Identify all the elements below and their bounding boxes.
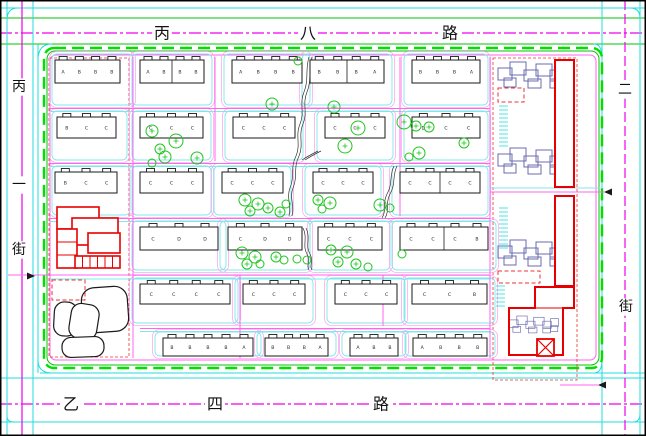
stair-bump: [352, 57, 360, 61]
unit-type-letter: B: [453, 69, 456, 75]
unit-type-letter: C: [105, 180, 108, 186]
unit-type-letter: C: [361, 180, 364, 186]
stair-bump: [334, 57, 342, 61]
stair-bump: [325, 224, 333, 228]
stair-bump: [192, 57, 200, 61]
unit-type-letter: C: [431, 236, 434, 242]
stair-bump: [147, 114, 155, 118]
unit-type-letter: C: [149, 180, 152, 186]
stair-bump: [254, 57, 262, 61]
stair-bump: [260, 114, 268, 118]
unit-type-letter: B: [473, 292, 476, 298]
stair-bump: [281, 114, 289, 118]
stair-bump: [170, 281, 178, 285]
unit-type-letter: C: [191, 125, 194, 131]
stair-bump: [354, 335, 362, 339]
stair-bump: [249, 169, 257, 173]
stair-bump: [108, 57, 116, 61]
unit-type-letter: C: [252, 292, 255, 298]
stair-bump: [144, 57, 152, 61]
unit-type-letter: C: [373, 125, 376, 131]
school-building-block: [57, 229, 77, 268]
stair-bump: [421, 281, 429, 285]
residential-building: CCC: [140, 169, 203, 194]
stair-bump: [147, 169, 155, 173]
residential-building: BCC: [55, 169, 117, 194]
unit-type-letter: B: [388, 345, 391, 351]
unit-type-letter: B: [475, 236, 478, 242]
stair-bump: [75, 57, 83, 61]
unit-type-letter: C: [327, 236, 330, 242]
unit-type-letter: D: [203, 236, 207, 242]
stair-bump: [474, 335, 482, 339]
unit-type-letter: B: [372, 345, 375, 351]
school-building-block: [88, 233, 120, 253]
road-label-bottom: 四: [207, 395, 223, 414]
stair-bump: [240, 335, 248, 339]
stair-bump: [222, 335, 230, 339]
unit-type-letter: C: [341, 180, 344, 186]
stair-bump: [102, 114, 110, 118]
stair-bump: [291, 281, 299, 285]
residential-building: DCC: [412, 114, 480, 139]
stair-bump: [63, 114, 71, 118]
stair-bump: [103, 169, 111, 173]
unit-type-letter: C: [370, 236, 373, 242]
stair-bump: [192, 281, 200, 285]
road-label-bottom: 乙: [63, 395, 79, 414]
residential-building: CCC: [313, 169, 373, 194]
unit-type-letter: B: [419, 69, 422, 75]
stair-bump: [147, 281, 155, 285]
stair-bump: [367, 224, 375, 228]
unit-type-letter: B: [274, 69, 277, 75]
stair-bump: [186, 335, 194, 339]
stair-bump: [316, 335, 324, 339]
stair-bump: [406, 169, 414, 173]
stair-bump: [239, 114, 247, 118]
unit-type-letter: B: [336, 69, 339, 75]
stair-bump: [168, 335, 176, 339]
unit-type-letter: C: [242, 125, 245, 131]
red-tower-building: [555, 196, 574, 286]
unit-type-letter: C: [423, 292, 426, 298]
unit-type-letter: C: [448, 180, 451, 186]
unit-type-letter: B: [476, 345, 479, 351]
stair-bump: [189, 169, 197, 173]
unit-type-letter: C: [151, 236, 154, 242]
site-plan-canvas: ABBBABBBABBBBBBABBBABCCCCCCCCCCCDCCBCCCC…: [0, 0, 646, 436]
stair-bump: [83, 114, 91, 118]
residential-building: CCC: [335, 281, 397, 305]
unit-type-letter: C: [333, 125, 336, 131]
stair-bump: [473, 224, 481, 228]
unit-type-letter: B: [94, 69, 97, 75]
stair-bump: [346, 224, 354, 228]
stair-bump: [417, 57, 425, 61]
red-tower-building: [555, 60, 574, 187]
unit-type-letter: B: [458, 345, 461, 351]
residential-building: CCC: [222, 169, 283, 194]
stair-bump: [176, 57, 184, 61]
stair-bump: [272, 57, 280, 61]
stair-bump: [300, 335, 308, 339]
stair-bump: [228, 169, 236, 173]
unit-type-letter: B: [224, 345, 227, 351]
unit-type-letter: C: [272, 292, 275, 298]
stair-bump: [236, 224, 244, 228]
unit-type-letter: C: [150, 292, 153, 298]
unit-type-letter: C: [283, 125, 286, 131]
road-label-top: 八: [300, 24, 316, 43]
stair-bump: [383, 281, 391, 285]
unit-type-letter: B: [178, 69, 181, 75]
stair-bump: [189, 114, 197, 118]
stair-bump: [59, 57, 67, 61]
unit-type-letter: D: [177, 236, 181, 242]
stair-bump: [429, 224, 437, 228]
stair-bump: [315, 57, 323, 61]
unit-type-letter: C: [408, 180, 411, 186]
stair-bump: [149, 224, 157, 228]
unit-type-letter: C: [239, 236, 242, 242]
residential-building: CDD: [140, 224, 218, 251]
unit-type-letter: B: [271, 345, 274, 351]
stair-bump: [426, 169, 434, 173]
stair-bump: [446, 169, 454, 173]
stair-bump: [418, 335, 426, 339]
stair-bump: [269, 335, 277, 339]
road-label-left: 丙: [12, 79, 26, 95]
unit-type-letter: C: [85, 125, 88, 131]
freeform-building: [67, 302, 100, 341]
unit-type-letter: C: [364, 292, 367, 298]
stair-bump: [160, 57, 168, 61]
freeform-building: [62, 336, 105, 357]
stair-bump: [331, 114, 339, 118]
road-label-right: 街: [619, 299, 633, 315]
stair-bump: [175, 224, 183, 228]
residential-building: BBBA: [265, 335, 328, 357]
unit-type-letter: B: [303, 345, 306, 351]
stair-bump: [341, 281, 349, 285]
unit-type-letter: C: [217, 292, 220, 298]
residential-building: BBBA: [412, 57, 480, 84]
residential-building: ABB: [350, 335, 398, 357]
unit-type-letter: C: [344, 292, 347, 298]
stair-bump: [362, 281, 370, 285]
road-label-left: 一: [12, 177, 26, 193]
unit-type-letter: D: [263, 236, 267, 242]
unit-type-letter: B: [110, 69, 113, 75]
unit-type-letter: C: [467, 125, 470, 131]
stair-bump: [370, 335, 378, 339]
unit-type-letter: C: [385, 292, 388, 298]
stair-bump: [204, 335, 212, 339]
unit-type-letter: C: [195, 292, 198, 298]
stair-bump: [61, 169, 69, 173]
unit-type-letter: B: [64, 180, 67, 186]
residential-building: CCCC: [140, 281, 230, 305]
stair-bump: [270, 281, 278, 285]
road-label-bottom: 路: [373, 395, 389, 414]
unit-type-letter: D: [288, 236, 292, 242]
stair-bump: [371, 57, 379, 61]
stair-bump: [466, 169, 474, 173]
unit-type-letter: C: [170, 180, 173, 186]
road-label-top: 路: [442, 24, 458, 43]
unit-type-letter: C: [409, 236, 412, 242]
unit-type-letter: C: [172, 292, 175, 298]
unit-type-letter: B: [436, 69, 439, 75]
stair-bump: [92, 57, 100, 61]
stair-bump: [82, 169, 90, 173]
stair-bump: [286, 224, 294, 228]
unit-type-letter: C: [251, 180, 254, 186]
unit-type-letter: B: [292, 69, 295, 75]
unit-type-letter: B: [206, 345, 209, 351]
unit-type-letter: C: [191, 180, 194, 186]
stair-bump: [269, 169, 277, 173]
residential-building: ABBB: [232, 57, 302, 84]
road-label-right: 二: [618, 82, 632, 98]
unit-type-letter: C: [468, 180, 471, 186]
stair-bump: [359, 169, 367, 173]
unit-type-letter: B: [188, 345, 191, 351]
stair-bump: [285, 335, 293, 339]
residential-building: CCC: [243, 281, 305, 305]
stair-bump: [319, 169, 327, 173]
residential-building: ABBB: [55, 57, 120, 84]
stair-bump: [455, 335, 463, 339]
unit-type-letter: C: [293, 292, 296, 298]
stair-bump: [442, 114, 450, 118]
unit-type-letter: C: [428, 180, 431, 186]
unit-type-letter: C: [84, 180, 87, 186]
stair-bump: [201, 224, 209, 228]
stair-bump: [261, 224, 269, 228]
stair-bump: [419, 114, 427, 118]
stair-bump: [451, 57, 459, 61]
stair-bump: [446, 281, 454, 285]
stair-bump: [237, 57, 245, 61]
unit-type-letter: C: [448, 292, 451, 298]
unit-type-letter: C: [444, 125, 447, 131]
unit-type-letter: B: [170, 345, 173, 351]
stair-bump: [168, 169, 176, 173]
unit-type-letter: C: [321, 180, 324, 186]
stair-bump: [386, 335, 394, 339]
stair-bump: [407, 224, 415, 228]
stair-bump: [339, 169, 347, 173]
unit-type-letter: B: [318, 69, 321, 75]
unit-type-letter: C: [170, 125, 173, 131]
stair-bump: [451, 224, 459, 228]
residential-building: BCC: [57, 114, 116, 139]
unit-type-letter: C: [262, 125, 265, 131]
stair-bump: [471, 281, 479, 285]
stair-bump: [371, 114, 379, 118]
unit-type-letter: C: [271, 180, 274, 186]
stair-bump: [215, 281, 223, 285]
unit-type-letter: B: [287, 345, 290, 351]
unit-type-letter: C: [105, 125, 108, 131]
residential-building: CDD: [228, 224, 302, 251]
stair-bump: [351, 114, 359, 118]
stair-bump: [434, 57, 442, 61]
residential-building: CCC: [233, 114, 295, 139]
stair-bump: [468, 57, 476, 61]
unit-type-letter: B: [162, 69, 165, 75]
residential-building: BBBBA: [163, 335, 253, 357]
unit-type-letter: C: [348, 236, 351, 242]
unit-type-letter: B: [65, 125, 68, 131]
stair-bump: [249, 281, 257, 285]
unit-type-letter: B: [257, 69, 260, 75]
unit-type-letter: B: [355, 69, 358, 75]
unit-type-letter: C: [453, 236, 456, 242]
road-label-left: 街: [12, 242, 26, 258]
residential-building: CCB: [412, 281, 487, 305]
road-label-top: 丙: [154, 24, 170, 43]
residential-building: ABBB: [413, 335, 487, 357]
stair-bump: [437, 335, 445, 339]
unit-type-letter: B: [78, 69, 81, 75]
unit-type-letter: B: [194, 69, 197, 75]
stair-bump: [168, 114, 176, 118]
unit-type-letter: B: [439, 345, 442, 351]
site-plan-drawing: ABBBABBBABBBBBBABBBABCCCCCCCCCCCDCCBCCCC…: [0, 0, 646, 436]
unit-type-letter: C: [231, 180, 234, 186]
stair-bump: [465, 114, 473, 118]
